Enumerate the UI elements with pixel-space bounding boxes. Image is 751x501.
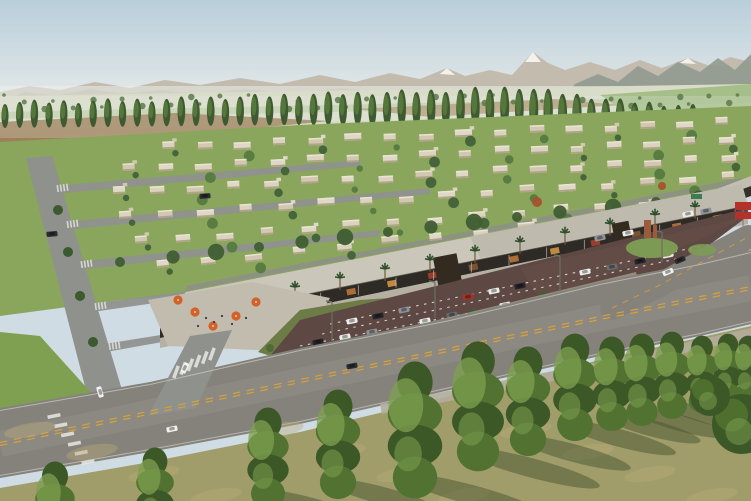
distant-tree (188, 94, 194, 100)
windbreak-poplar-highlight (354, 94, 359, 114)
poplar-highlight (659, 379, 677, 401)
villa (531, 146, 548, 154)
palm-frond (295, 286, 300, 287)
pedestrian (197, 325, 199, 327)
yard-tree (393, 144, 399, 150)
poplar-highlight (655, 342, 677, 376)
villa-wing (532, 218, 537, 222)
yard-tree (370, 208, 376, 214)
yard-tree (581, 155, 587, 161)
villa-wing (453, 187, 458, 191)
villa (607, 160, 622, 168)
villa-wing (314, 223, 319, 227)
windbreak-poplar-highlight (60, 102, 65, 118)
moving-car (46, 231, 57, 237)
villa-wing (172, 138, 177, 142)
yard-tree (465, 136, 476, 147)
distant-tree (217, 94, 222, 99)
windbreak-poplar-highlight (2, 106, 7, 120)
villa (159, 163, 174, 171)
poplar-highlight (458, 412, 484, 445)
avenue-median-tree (53, 205, 63, 215)
distant-tree (120, 97, 125, 102)
corner-tree-clump-light (699, 392, 717, 410)
villa (227, 181, 239, 189)
villa (175, 234, 190, 243)
poplar-highlight (559, 392, 581, 420)
villa-wing (483, 208, 488, 212)
yard-tree (352, 186, 358, 192)
ornamental-red-tree (658, 182, 666, 190)
green-road-sign (691, 194, 702, 199)
villa (679, 177, 696, 186)
villa (685, 155, 697, 163)
large-yard-tree (295, 235, 308, 248)
villa-wing (129, 208, 134, 212)
villa (459, 150, 471, 158)
yard-tree (205, 172, 216, 183)
villa (558, 183, 575, 192)
poplar-highlight (594, 348, 618, 385)
villa (683, 137, 695, 145)
car-cabin (49, 232, 55, 236)
villa (676, 121, 693, 129)
villa (307, 154, 324, 162)
villa (530, 125, 545, 133)
yard-tree (347, 251, 356, 260)
yard-tree (312, 234, 321, 243)
distant-tree (638, 96, 642, 100)
windbreak-poplar-highlight (383, 95, 388, 116)
red-billboard (735, 212, 751, 219)
palm-frond (385, 268, 390, 269)
car-cabin (202, 194, 208, 198)
villa (715, 117, 727, 125)
villa (198, 141, 213, 149)
red-billboard (735, 202, 751, 210)
villa (387, 218, 400, 226)
windbreak-poplar-highlight (207, 99, 212, 117)
palm-frond (430, 259, 435, 260)
villa-wing (291, 200, 296, 204)
yard-tree (172, 150, 178, 156)
poplar-highlight (511, 406, 533, 434)
poplar-highlight (598, 388, 617, 412)
distant-tree (247, 93, 251, 97)
rendering-stage (0, 0, 751, 501)
villa-wing (283, 156, 288, 160)
umbrella-center (177, 299, 179, 301)
villa (301, 175, 318, 183)
yard-tree (611, 192, 617, 198)
umbrella-center (194, 311, 196, 313)
villa (644, 160, 661, 168)
yard-tree (426, 177, 437, 188)
yard-tree (281, 167, 290, 176)
poplar-highlight (624, 345, 648, 381)
poplar-highlight (321, 449, 343, 477)
yard-tree (732, 163, 741, 172)
villa (565, 125, 582, 133)
large-yard-tree (166, 250, 179, 263)
distant-tree (540, 99, 544, 103)
villa (519, 184, 534, 192)
yard-tree (132, 172, 138, 178)
villa-wing (144, 232, 149, 236)
windbreak-poplar-highlight (90, 103, 95, 119)
junction-island-small (688, 244, 716, 256)
villa (273, 137, 285, 145)
villa (481, 190, 493, 198)
windbreak-poplar-highlight (530, 92, 536, 117)
poplar-highlight (554, 347, 581, 389)
windbreak-poplar-highlight (46, 104, 51, 119)
villa-wing (734, 152, 739, 156)
distant-tree (677, 94, 683, 100)
poplar-highlight (453, 357, 486, 408)
villa (235, 159, 247, 167)
yard-tree (357, 165, 363, 171)
palm-frond (475, 250, 480, 251)
villa (342, 219, 360, 228)
yard-tree (123, 195, 129, 201)
yard-tree (207, 218, 218, 229)
villa (722, 171, 734, 179)
windbreak-poplar-highlight (501, 90, 507, 115)
poplar-highlight (394, 436, 422, 471)
windbreak-poplar-highlight (119, 103, 124, 118)
yard-tree (319, 145, 328, 154)
distant-tree (22, 100, 27, 105)
distant-tree (51, 99, 55, 103)
yard-tree (448, 197, 459, 208)
villa (195, 163, 212, 171)
yard-tree (429, 157, 440, 168)
yard-tree (167, 268, 173, 274)
villa (360, 197, 372, 205)
distant-tree (100, 105, 104, 109)
villa (342, 175, 354, 183)
villa (530, 165, 547, 173)
villa-wing (276, 178, 281, 182)
pedestrian (231, 323, 233, 325)
ornamental-red-tree (532, 197, 542, 207)
poplar-highlight (687, 345, 707, 375)
villa-wing (581, 143, 586, 147)
windbreak-poplar-highlight (266, 99, 271, 116)
villa (261, 227, 274, 235)
distant-tree (736, 93, 740, 97)
yard-tree (503, 175, 512, 184)
palm-frond (340, 277, 345, 278)
entry-monument (644, 220, 651, 238)
distant-tree (393, 96, 397, 100)
windbreak-poplar-highlight (295, 98, 300, 115)
windbreak-poplar-highlight (413, 95, 418, 116)
windbreak-poplar-highlight (471, 90, 477, 114)
median-shrub (266, 344, 274, 352)
light-arm (429, 281, 435, 282)
villa (216, 233, 234, 242)
pedestrian (245, 317, 247, 319)
villa (317, 197, 334, 206)
poplar-highlight (388, 378, 423, 432)
distant-tree (726, 100, 732, 106)
windbreak-poplar-highlight (104, 101, 109, 118)
light-arm (326, 301, 332, 302)
windbreak-poplar-highlight (193, 101, 198, 117)
yard-tree (145, 244, 151, 250)
windbreak-poplar-highlight (339, 97, 344, 116)
yard-tree (274, 188, 283, 197)
windbreak-poplar-highlight (486, 92, 492, 115)
yard-tree (580, 174, 586, 180)
pedestrian (221, 315, 223, 317)
avenue-median-tree (88, 337, 98, 347)
palm-frond (565, 232, 570, 233)
windbreak-poplar-highlight (75, 105, 80, 120)
distant-tree (687, 102, 691, 106)
villa (234, 142, 251, 150)
villa-wing (580, 162, 585, 166)
windbreak-poplar-highlight (163, 101, 168, 117)
windbreak-poplar-highlight (310, 96, 315, 115)
yard-tree (505, 155, 514, 164)
large-yard-tree (208, 244, 224, 260)
villa-wing (321, 135, 326, 139)
large-yard-tree (424, 220, 437, 233)
large-yard-tree (553, 205, 566, 218)
villa (607, 141, 622, 149)
villa (495, 145, 510, 153)
distant-tree (658, 103, 663, 108)
windbreak-poplar-highlight (442, 95, 447, 116)
distant-tree (71, 106, 76, 111)
villa (399, 196, 414, 204)
distant-tree (706, 94, 711, 99)
windbreak-poplar-highlight (457, 92, 463, 115)
windbreak-poplar-highlight (16, 104, 21, 120)
villa-wing (434, 147, 439, 151)
villa (383, 155, 398, 163)
umbrella-center (255, 301, 257, 303)
distant-tree (511, 100, 516, 105)
distant-tree (149, 96, 153, 100)
windbreak-poplar-highlight (178, 99, 183, 117)
villa-wing (430, 167, 435, 171)
villa (239, 204, 251, 212)
villa-wing (132, 160, 137, 164)
windbreak-poplar-highlight (281, 96, 286, 115)
poplar-highlight (507, 360, 535, 403)
large-yard-tree (337, 229, 353, 245)
pedestrian (205, 317, 207, 319)
avenue-median-tree (75, 291, 85, 301)
villa (187, 186, 204, 194)
windbreak-poplar-highlight (325, 94, 330, 114)
junction-island (626, 238, 678, 258)
villa (494, 130, 506, 138)
distant-tree (609, 97, 614, 102)
large-yard-tree (512, 212, 522, 222)
poplar-highlight (253, 463, 273, 489)
windbreak-poplar-highlight (427, 92, 433, 114)
yard-tree (653, 150, 664, 161)
light-arm (656, 231, 662, 232)
moving-car (199, 193, 210, 199)
distant-tree (364, 97, 369, 102)
villa (344, 133, 361, 141)
umbrella-center (235, 315, 237, 317)
poplar-highlight (628, 384, 647, 408)
villa-wing (731, 134, 736, 138)
villa (150, 186, 165, 194)
windbreak-poplar-highlight (222, 101, 227, 117)
villa (640, 177, 655, 185)
windbreak-poplar-highlight (237, 99, 242, 116)
palm-frond (695, 206, 700, 207)
yard-tree (615, 134, 621, 140)
windbreak-poplar-highlight (398, 92, 404, 114)
yard-tree (227, 242, 238, 253)
villa (640, 121, 655, 129)
villa-wing (615, 123, 620, 127)
yard-tree (129, 219, 135, 225)
windbreak-poplar-highlight (149, 103, 154, 118)
villa-wing (611, 180, 616, 184)
yard-tree (654, 169, 665, 180)
aerial-rendering-scene (0, 0, 751, 501)
villa (158, 210, 173, 218)
villa (419, 134, 434, 142)
poplar-highlight (738, 372, 751, 389)
yard-tree (540, 135, 549, 144)
villa-wing (470, 126, 475, 130)
yard-tree (289, 211, 298, 220)
villa (643, 141, 660, 149)
palm-frond (610, 223, 615, 224)
large-yard-tree (254, 242, 264, 252)
villa (347, 154, 359, 162)
avenue-median-tree (63, 247, 73, 257)
large-yard-tree (115, 257, 125, 267)
large-yard-tree (466, 214, 482, 230)
yard-tree (255, 263, 266, 274)
poplar-highlight (137, 459, 160, 495)
windbreak-poplar-highlight (515, 92, 521, 115)
pedestrian (213, 321, 215, 323)
light-arm (554, 255, 560, 256)
umbrella-center (212, 325, 214, 327)
windbreak-poplar-highlight (369, 97, 374, 116)
villa (378, 175, 393, 183)
yard-tree (729, 145, 738, 154)
villa (197, 209, 214, 218)
large-yard-tree (383, 227, 393, 237)
villa (384, 133, 396, 141)
villa (493, 165, 508, 173)
palm-frond (655, 214, 660, 215)
villa (456, 170, 468, 178)
windbreak-poplar-highlight (134, 101, 139, 118)
poplar-highlight (248, 420, 274, 460)
palm-frond (520, 241, 525, 242)
poplar-highlight (317, 403, 345, 446)
poplar-highlight (714, 342, 732, 370)
villa-wing (123, 183, 128, 187)
windbreak-poplar-highlight (251, 96, 256, 115)
windbreak-poplar-highlight (31, 102, 36, 119)
distant-tree (2, 93, 6, 97)
